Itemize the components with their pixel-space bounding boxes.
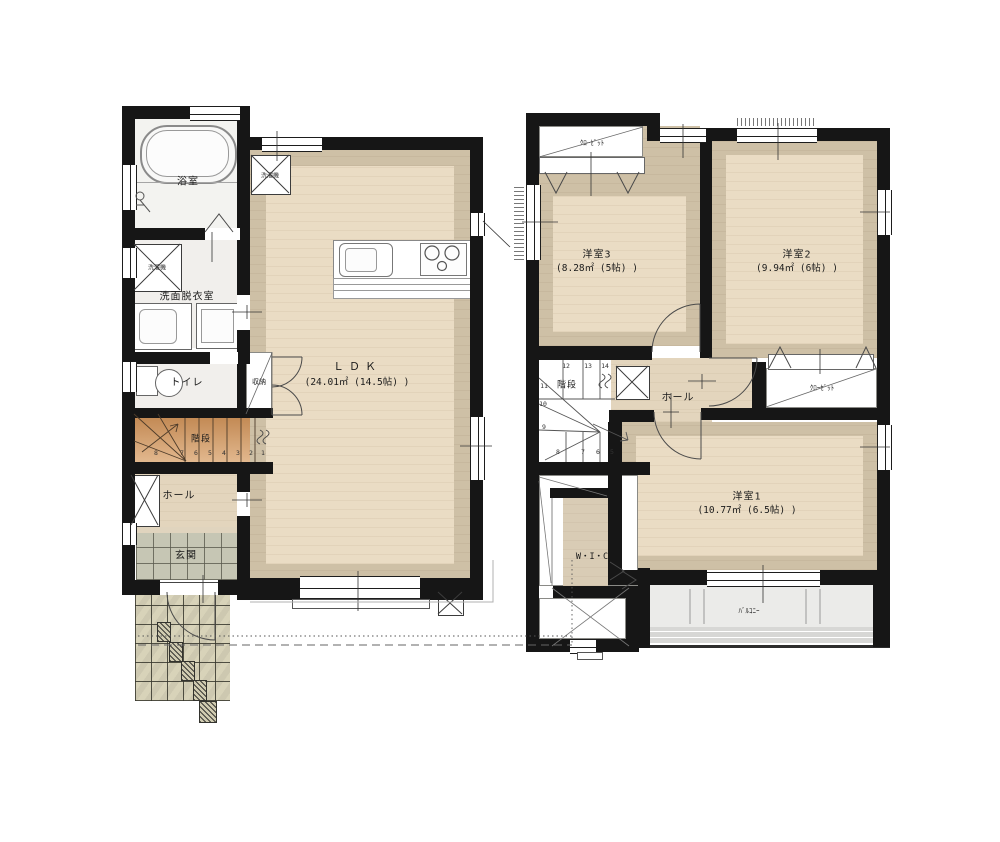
- stair-number: 5: [208, 449, 212, 457]
- wall: [237, 330, 250, 352]
- door-opening: [210, 352, 238, 364]
- wall: [470, 236, 483, 417]
- window: [737, 128, 817, 143]
- hall2-label: ホール: [662, 389, 695, 404]
- shaft-symbol: [616, 366, 650, 400]
- entrance-label: 玄関: [175, 547, 197, 562]
- washroom-label: 洗面脱衣室: [160, 288, 215, 303]
- kitchen-stove: [420, 243, 467, 276]
- door-opening: [205, 228, 240, 240]
- wall: [622, 570, 707, 585]
- room3-label: 洋室3: [582, 246, 611, 261]
- window: [122, 165, 137, 210]
- porch-step: [199, 701, 217, 723]
- balcony-railing: [650, 627, 873, 643]
- washroom-cabinet-door: [201, 309, 234, 343]
- porch-step: [181, 661, 195, 681]
- storage-label: 収納: [252, 377, 266, 387]
- room1-label: 洋室1: [732, 488, 761, 503]
- wall: [218, 580, 250, 595]
- window: [877, 190, 892, 235]
- stairs1-label: 階段: [191, 432, 211, 445]
- window: [190, 106, 240, 121]
- stair-number: 7: [180, 449, 184, 457]
- wall: [538, 346, 652, 360]
- kitchen-table-band: [333, 278, 472, 299]
- window: [470, 213, 485, 236]
- stair-number: 4: [222, 449, 226, 457]
- wall: [322, 137, 483, 150]
- stair-number: 14: [601, 362, 609, 370]
- wall: [647, 128, 660, 141]
- wall: [877, 470, 890, 585]
- wall: [420, 578, 483, 600]
- stair-number: 5: [610, 448, 614, 456]
- window-hatch: [737, 118, 817, 126]
- window: [122, 248, 137, 278]
- closet-top-doors: [539, 157, 645, 174]
- balcony-floor: [650, 585, 873, 627]
- wall: [596, 639, 639, 652]
- wall: [553, 586, 638, 598]
- balcony-edge: [640, 645, 890, 648]
- ldk-label: ＬＤＫ: [333, 358, 381, 374]
- closet-mid-label: ｸﾛｰｾﾞｯﾄ: [810, 383, 835, 393]
- wic-floor: [563, 498, 608, 586]
- wall: [701, 408, 890, 420]
- closet-mid-doors: [768, 354, 874, 370]
- wall: [122, 106, 190, 119]
- wall: [238, 352, 250, 364]
- shoe-cabinet-symbol: [131, 475, 160, 527]
- wall: [608, 422, 622, 585]
- stair-number: 7: [581, 448, 585, 456]
- stair-number: 11: [540, 382, 548, 390]
- stairs2-label: 階段: [557, 378, 577, 391]
- wall: [877, 235, 890, 425]
- vanity-sink: [139, 309, 177, 344]
- wall: [609, 410, 654, 422]
- window: [122, 362, 137, 392]
- balcony-label: ﾊﾞﾙｺﾆｰ: [739, 606, 760, 616]
- stair-number: 12: [562, 362, 570, 370]
- stair-number: 8: [154, 449, 158, 457]
- wall: [237, 516, 250, 542]
- stair-number: 10: [539, 400, 547, 408]
- stair-number: 8: [556, 448, 560, 456]
- stair-number: 3: [236, 449, 240, 457]
- room2-label: 洋室2: [782, 246, 811, 261]
- wall: [877, 128, 890, 190]
- stair-number: 6: [194, 449, 198, 457]
- door-opening: [237, 492, 250, 516]
- washer-label: 洗濯機: [261, 171, 279, 180]
- wall: [237, 137, 262, 150]
- window: [122, 523, 137, 545]
- hall1-label: ホール: [163, 487, 196, 502]
- closet-top-label: ｸﾛｰｾﾞｯﾄ: [580, 138, 605, 148]
- stair-number: 2: [249, 449, 253, 457]
- toilet-label: トイレ: [171, 374, 204, 389]
- entrance-door-opening: [160, 582, 218, 595]
- wall: [526, 260, 539, 639]
- wic-label: W・I・C: [576, 550, 608, 562]
- stair-number: 13: [584, 362, 592, 370]
- wall: [526, 639, 570, 652]
- bath-label: 浴室: [177, 173, 199, 188]
- window: [526, 185, 541, 260]
- wall: [240, 228, 250, 240]
- wall: [122, 228, 205, 240]
- window-sill: [292, 599, 430, 609]
- wall: [122, 408, 273, 418]
- washer-label: 洗濯機: [148, 263, 166, 272]
- bathtub-inner: [146, 130, 229, 177]
- wall: [122, 462, 273, 474]
- window-sliding-door: [707, 572, 820, 587]
- window-hatch: [514, 185, 524, 260]
- wall: [470, 137, 483, 213]
- door-opening: [237, 295, 250, 330]
- window-sill: [577, 652, 603, 660]
- wall: [700, 141, 712, 358]
- wall: [873, 585, 890, 647]
- roof-void-area: [539, 598, 626, 639]
- kitchen-sink-basin: [345, 248, 377, 272]
- wall: [752, 362, 766, 408]
- wall: [526, 462, 650, 475]
- porch-step: [193, 680, 207, 701]
- floorplan-canvas: 浴室 洗濯機 洗面脱衣室 トイレ 収納 階段 ホール 玄関 ＬＤＫ (24.01…: [0, 0, 1000, 842]
- porch-step: [169, 642, 183, 662]
- porch-step: [157, 622, 171, 642]
- wall: [526, 113, 660, 126]
- window: [660, 128, 706, 143]
- stair-number: 6: [596, 448, 600, 456]
- room1-area-label: (10.77㎡ (6.5帖) ): [697, 502, 796, 516]
- room3-area-label: (8.28㎡ (5帖) ): [556, 260, 638, 274]
- window: [877, 425, 892, 470]
- wall: [237, 106, 250, 295]
- wall: [550, 488, 610, 498]
- window: [470, 417, 485, 480]
- wall: [122, 580, 160, 595]
- ldk-area-label: (24.01㎡ (14.5帖) ): [305, 374, 410, 388]
- stair-number: 1: [261, 449, 265, 457]
- room2-area-label: (9.94㎡ (6帖) ): [756, 260, 838, 274]
- window: [262, 137, 322, 152]
- wall: [820, 570, 877, 585]
- window-sliding-door: [300, 576, 420, 599]
- wall: [122, 278, 135, 362]
- stair-number: 9: [542, 423, 546, 431]
